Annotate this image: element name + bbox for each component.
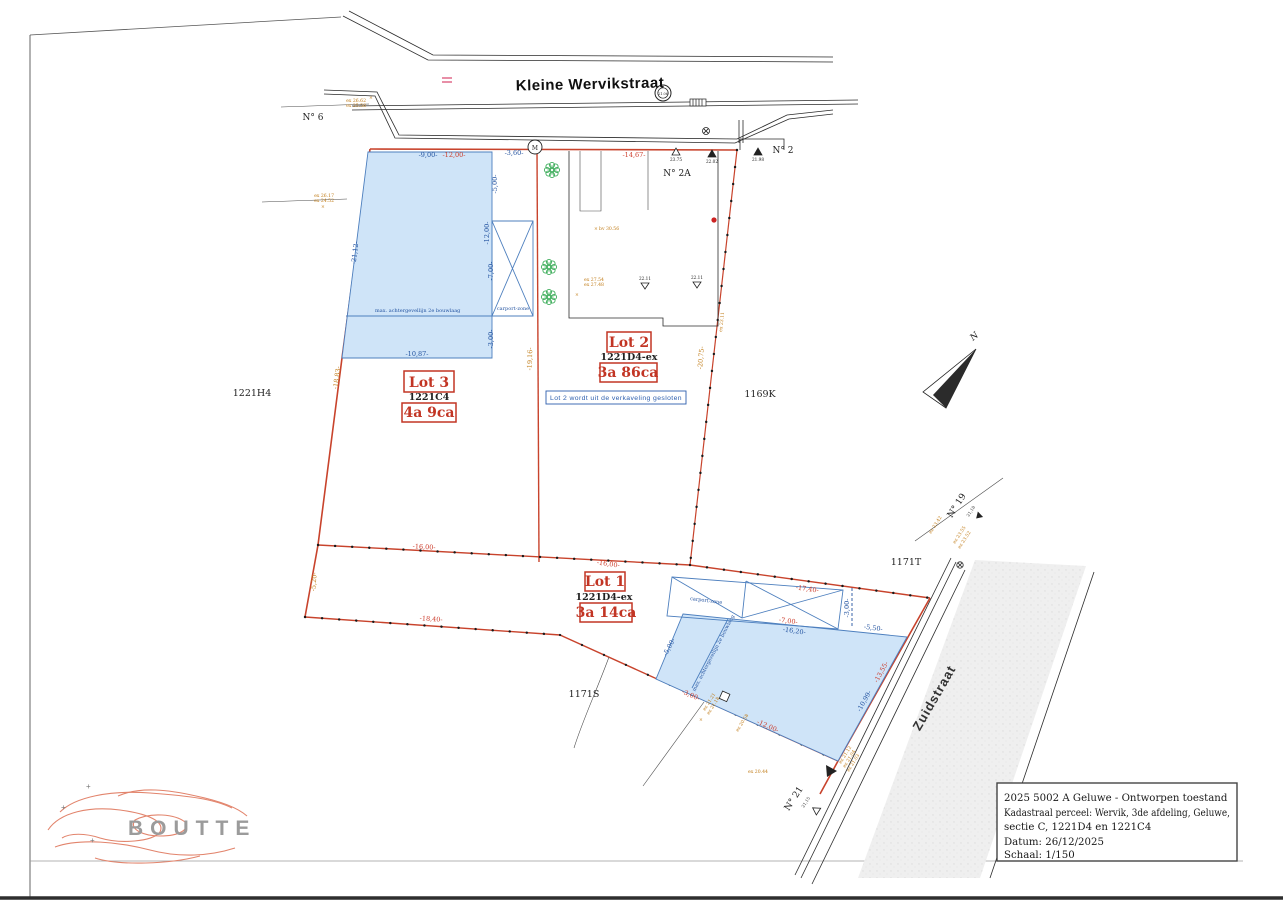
manhole-level: 21.06 xyxy=(658,92,668,96)
dim: -19,16- xyxy=(526,347,535,370)
house-n2a: × bv 30.56 ex 27.54 ex 27.48 × 22.11 22.… xyxy=(569,151,726,332)
title-line4: Datum: 26/12/2025 xyxy=(1004,837,1104,848)
utility-marker-icon xyxy=(703,128,710,135)
level-triangle-icon xyxy=(693,282,701,288)
parcel-1171t: 1171T xyxy=(891,557,922,568)
lot2-note: Lot 2 wordt uit de verkaveling gesloten xyxy=(550,395,682,402)
title-line3: sectie C, 1221D4 en 1221C4 xyxy=(1004,822,1151,833)
level-value: 21.98 xyxy=(752,157,764,162)
lot-labels: Lot 3 1221C4 4a 9ca Lot 2 1221D4-ex 3a 8… xyxy=(402,332,686,622)
logo-plus: + xyxy=(61,803,66,812)
level-label: ex 23.42 xyxy=(928,515,944,535)
dim: -5,00- xyxy=(491,175,499,194)
dim: -5,20- xyxy=(309,572,318,591)
level-triangle-icon xyxy=(641,283,649,289)
lot2-parcel: 1221D4-ex xyxy=(601,352,658,363)
dim: -16,00- xyxy=(596,558,620,569)
level-value: 22.02 xyxy=(706,159,718,164)
road-kleine-wervikstraat: 21.06 Kleine Wervikstraat xyxy=(324,11,858,150)
north-label: N xyxy=(968,330,982,344)
equals-mark-icon xyxy=(442,78,452,82)
dim: -3,00- xyxy=(487,330,495,349)
title-line2: Kadastraal perceel: Wervik, 3de afdeling… xyxy=(1004,808,1230,819)
carport-label: carport-zone xyxy=(690,596,723,606)
dim: -3,60- xyxy=(505,149,524,157)
dim: -17,40- xyxy=(795,583,819,594)
lot3-parcel: 1221C4 xyxy=(409,392,450,403)
logo-plus: + xyxy=(90,836,95,845)
level-value: 23.75 xyxy=(670,157,682,162)
level-label: ex 23.11 xyxy=(718,312,726,333)
level-triangle-icon xyxy=(708,150,716,157)
lot2-area: 3a 86ca xyxy=(598,365,659,381)
lot3-name: Lot 3 xyxy=(409,375,449,391)
level-value: 22.11 xyxy=(691,275,703,280)
red-point xyxy=(711,217,716,222)
lot2-name: Lot 2 xyxy=(609,335,649,351)
house-n2a: N° 2A xyxy=(663,169,691,179)
lot1-building-zone: max. achtergevellijn 2e bouwlaag carport… xyxy=(656,577,907,777)
level-value: 21,15 xyxy=(800,796,811,809)
level-label: ex 24.52 xyxy=(314,198,334,204)
logo: + + + BOUTTE xyxy=(48,782,256,863)
trees xyxy=(541,162,559,304)
dim: -20,75- xyxy=(696,346,706,370)
x-mark: × xyxy=(321,204,325,210)
x-mark: × xyxy=(369,95,373,101)
monument-letter: M xyxy=(532,145,538,152)
house-n6: N° 6 xyxy=(303,113,324,123)
dim: -3,00- xyxy=(843,599,851,618)
level-value: 22.11 xyxy=(639,276,651,281)
dim: -16,00- xyxy=(412,542,435,551)
level-label: ex 27.48 xyxy=(584,282,604,288)
north-arrow-icon: N xyxy=(923,330,982,408)
monument-icon: M xyxy=(528,140,542,154)
logo-text: BOUTTE xyxy=(128,817,256,840)
parcel-1171s: 1171S xyxy=(569,689,600,700)
cadastral-plan-page: 21.06 Kleine Wervikstraat ex 26.62 ex 25… xyxy=(0,0,1283,903)
lot1-parcel: 1221D4-ex xyxy=(576,592,633,603)
level-triangle-icon xyxy=(810,804,820,815)
drain-grate-icon xyxy=(690,99,706,106)
parcel-1221h4: 1221H4 xyxy=(233,388,272,399)
dim: -9,00- xyxy=(419,151,438,159)
level-value: 21,18 xyxy=(965,505,976,518)
house-n21: N° 21 xyxy=(783,785,806,813)
dim: -12,00- xyxy=(442,151,465,159)
level-label: ex 20.44 xyxy=(748,769,768,775)
lot3-area: 4a 9ca xyxy=(403,405,454,421)
lot1-area: 3a 14ca xyxy=(576,605,637,621)
backline-label: max. achtergevellijn 2e bouwlaag xyxy=(375,308,461,314)
level-triangle-icon xyxy=(974,510,983,519)
lot3-building-zone: max. achtergevellijn 2e bouwlaag carport… xyxy=(342,152,533,358)
dim: -18,83- xyxy=(331,366,342,390)
house-n2: N° 2 xyxy=(773,146,794,156)
dim: -10,87- xyxy=(405,350,428,358)
title-block: 2025 5002 A Geluwe - Ontworpen toestand … xyxy=(997,783,1237,861)
dim: -7,00- xyxy=(487,262,495,281)
dim: -14,67- xyxy=(622,151,645,159)
logo-plus: + xyxy=(86,782,91,791)
title-line5: Schaal: 1/150 xyxy=(1004,850,1075,861)
parcel-1169k: 1169K xyxy=(744,389,776,400)
dim: -18,40- xyxy=(419,614,443,624)
carport-label: carport-zone xyxy=(497,306,529,312)
x-mark: × xyxy=(594,226,598,232)
street-name-kleine-wervikstraat: Kleine Wervikstraat xyxy=(516,74,665,94)
level-label: bv 30.56 xyxy=(599,226,619,232)
dim: -5,50- xyxy=(863,623,883,634)
level-label: ex 25.58 xyxy=(346,103,366,109)
x-mark: × xyxy=(699,717,703,723)
utility-marker-icon xyxy=(957,562,963,568)
dim: -12,00- xyxy=(483,221,491,244)
x-mark: × xyxy=(575,292,579,298)
lot1-name: Lot 1 xyxy=(585,574,625,590)
level-triangle-icon xyxy=(754,148,762,155)
title-line1: 2025 5002 A Geluwe - Ontworpen toestand xyxy=(1004,793,1228,804)
